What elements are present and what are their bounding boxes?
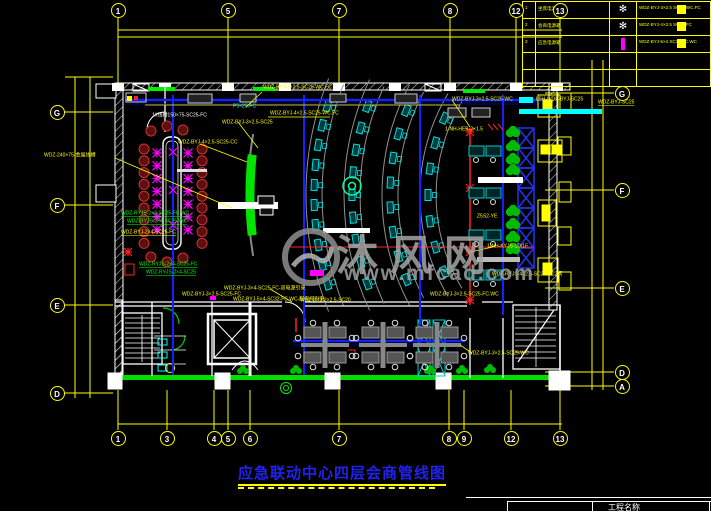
grid-bubble-right-A: A xyxy=(615,379,630,394)
desk xyxy=(311,199,317,210)
workstation-cluster xyxy=(295,320,355,370)
cable-label-6: WDZ-240×75-金属线槽 xyxy=(44,153,96,158)
legend-row-5 xyxy=(523,70,711,87)
plant xyxy=(459,365,465,371)
chair xyxy=(410,110,416,116)
legend-cell: 2 xyxy=(523,19,536,35)
desk xyxy=(441,352,458,363)
desk xyxy=(318,119,326,131)
legend-table: 1坐席电源箱✻WDZ-BYJ-3×2.5 SC25-WC.FC2会商电源箱✻WD… xyxy=(522,1,711,88)
cable-label-13: WDZ-RYJS-2×4-SC25 xyxy=(146,270,196,276)
chair xyxy=(402,133,407,139)
grid-bubble-left-F: F xyxy=(50,198,65,213)
cable-label-12: WDZ-RYJS-2×4-SC25-FC xyxy=(139,262,197,268)
legend-text: 3 xyxy=(525,39,528,44)
plant xyxy=(509,218,517,226)
desk xyxy=(329,352,346,363)
op-chair xyxy=(474,158,479,163)
chair xyxy=(407,353,413,359)
seat xyxy=(197,144,207,154)
footer-table-v3 xyxy=(709,501,710,511)
office-workstation-clusters xyxy=(295,320,467,370)
legend-cell: 会商电源箱 xyxy=(536,19,610,35)
plant xyxy=(509,164,517,172)
seat xyxy=(139,144,149,154)
flower-symbol-icon: ✻ xyxy=(619,5,627,15)
chair xyxy=(364,127,369,133)
seat xyxy=(139,238,149,248)
seat xyxy=(178,125,188,135)
plant xyxy=(509,231,517,239)
legend-cell xyxy=(637,70,711,86)
seat xyxy=(197,227,207,237)
grid-bubble-top-8: 8 xyxy=(443,3,458,18)
legend-cell: ✻ xyxy=(610,2,637,18)
chair xyxy=(334,320,340,326)
grid-bubble-top-12: 12 xyxy=(509,3,524,18)
desk xyxy=(362,352,379,363)
grid-bubble-bottom-13: 13 xyxy=(553,431,568,446)
plant xyxy=(293,365,299,371)
legend-cell xyxy=(610,53,637,69)
op-chair xyxy=(491,200,496,205)
legend-text: WDZ-BYJ-5×4 SC32-FC.WC xyxy=(639,39,697,44)
legend-cell: WDZ-BYJ-5×4 SC32-FC.WC xyxy=(637,36,711,52)
desk xyxy=(416,327,433,338)
desk xyxy=(356,122,365,134)
seat xyxy=(162,121,172,131)
legend-row-2: 2会商电源箱✻WDZ-BYJ-4×2.5 SC25-FC xyxy=(523,19,711,36)
chair xyxy=(439,142,444,148)
legend-yellow-box xyxy=(677,5,686,14)
stairs-left xyxy=(123,313,162,364)
chair xyxy=(322,143,327,149)
chair xyxy=(295,353,301,359)
cable-label-11: WDZ-BYJ-2×4-SC25-FC xyxy=(121,230,176,236)
theater-desk xyxy=(425,190,437,201)
desk xyxy=(314,239,322,251)
desk xyxy=(431,137,440,149)
cable-label-8: WDZ-BYJ-3×2.5-SC25 xyxy=(222,120,273,125)
chair xyxy=(434,167,439,173)
legend-cell: WDZ-BYJ-3×2.5 SC25-WC.FC xyxy=(637,2,711,18)
op-desk xyxy=(469,146,484,156)
cable-label-23: WDZ-BYJ-2×2.5-SC20 xyxy=(300,298,351,303)
grid-bubble-bottom-5: 5 xyxy=(221,431,236,446)
star-mark xyxy=(184,161,193,170)
seat xyxy=(197,156,207,166)
footer-table-v1 xyxy=(507,501,508,511)
star-mark xyxy=(153,149,162,158)
project-name-label: 工程名称 xyxy=(608,502,640,511)
desk xyxy=(387,202,394,213)
seat xyxy=(139,191,149,201)
chair xyxy=(310,364,316,370)
cad-drawing-stage: WDZ-BYJ-3×2.5-SC25-WC.FCWDZ-BYJ-4×2.5-SC… xyxy=(0,0,711,511)
legend-cell: 坐席电源箱 xyxy=(536,2,610,18)
footer-table-v2 xyxy=(592,501,593,511)
workstation-cluster xyxy=(407,320,467,370)
chair xyxy=(310,320,316,326)
star-mark xyxy=(184,200,193,209)
cable-label-0: WDZ-BYJ-3×2.5-SC25-WC.FC xyxy=(263,85,332,90)
op-desk xyxy=(469,188,484,198)
desk xyxy=(416,352,433,363)
desk xyxy=(314,139,322,151)
seat xyxy=(146,252,156,262)
chair xyxy=(392,320,398,326)
star-mark xyxy=(153,200,162,209)
watermark-url: www.mfcad.com xyxy=(344,262,535,286)
desk xyxy=(304,352,321,363)
desk xyxy=(387,352,404,363)
seat xyxy=(139,156,149,166)
theater-desk xyxy=(387,177,399,189)
flower-symbol xyxy=(281,383,292,394)
desk xyxy=(304,327,321,338)
star-mark xyxy=(153,174,162,183)
desk xyxy=(387,327,404,338)
cable-label-22: WDZ-BYJ-3×2.5-SC25-WC xyxy=(468,351,529,356)
plant xyxy=(509,205,517,213)
star-mark xyxy=(153,187,162,196)
seat xyxy=(197,238,207,248)
cable-label-7: WDZ-BYJ-4×2.5-SC25-CC xyxy=(178,140,238,145)
grid-bubble-bottom-6: 6 xyxy=(243,431,258,446)
chair xyxy=(353,353,359,359)
legend-cyan-underline xyxy=(519,109,602,114)
magenta-bar-icon xyxy=(621,38,625,50)
cable-label-3: P5×25-FC xyxy=(233,104,256,109)
seat xyxy=(146,126,156,136)
grid-bubble-top-5: 5 xyxy=(221,3,236,18)
legend-cell: WDZ-BYJ-4×2.5 SC25-FC xyxy=(637,19,711,35)
grid-bubble-bottom-1: 1 xyxy=(111,431,126,446)
legend-text: 会商电源箱 xyxy=(538,22,561,29)
flower-symbol-icon: ✻ xyxy=(619,22,627,32)
footer-divider-line xyxy=(466,497,711,498)
star-mark xyxy=(184,225,193,234)
chair xyxy=(368,364,374,370)
cable-label-9: WDZ-RYJS-2×4-SC25-FC.WC xyxy=(121,211,189,217)
screen-arc xyxy=(248,134,253,256)
legend-row-3: 3应急电源箱WDZ-BYJ-5×4 SC32-FC.WC xyxy=(523,36,711,53)
theater-desk xyxy=(311,179,323,190)
grid-bubble-top-13: 13 xyxy=(553,3,568,18)
grid-bubble-bottom-4: 4 xyxy=(207,431,222,446)
chair xyxy=(368,320,374,326)
grid-bubble-top-7: 7 xyxy=(332,3,347,18)
chair xyxy=(360,148,365,154)
seat xyxy=(197,215,207,225)
grid-bubble-right-E: E xyxy=(615,281,630,296)
theater-desk xyxy=(311,199,323,210)
cable-label-4: WDZ-BYJ-3×2.5-SC25-WC xyxy=(452,97,513,102)
legend-cell xyxy=(536,53,610,69)
legend-cyan-tag xyxy=(519,97,533,103)
plant xyxy=(509,153,517,161)
desk xyxy=(425,190,431,201)
drawing-title: 应急联动中心四层会商管线图 xyxy=(238,462,446,486)
star-mark xyxy=(124,248,132,256)
grid-bubble-top-1: 1 xyxy=(111,3,126,18)
star-mark xyxy=(466,296,474,304)
desk xyxy=(312,159,319,171)
cable-label-18: WDZ-BYJ-3×2.5-SC25-FC.WC xyxy=(430,292,499,297)
desk xyxy=(441,327,458,338)
desk xyxy=(311,179,317,190)
chair xyxy=(446,320,452,326)
stairs-right xyxy=(513,305,560,369)
cable-label-14: WDZ-BYJ-3×4-SC25-FC-双电源引来 xyxy=(224,286,306,291)
grid-bubble-bottom-8: 8 xyxy=(442,431,457,446)
seat xyxy=(139,179,149,189)
legend-text: WDZ-BYJ-3×2.5 SC25-WC.FC xyxy=(639,5,701,10)
chair xyxy=(397,156,402,162)
cable-label-21: 1-NH-HEB-2×1.5 xyxy=(445,127,483,132)
grid-bubble-right-D: D xyxy=(615,365,630,380)
legend-text: 2 xyxy=(525,22,528,27)
screen-green-arc xyxy=(250,155,252,236)
seat xyxy=(197,203,207,213)
bottom-columns xyxy=(108,371,570,390)
workstation-cluster xyxy=(353,320,413,370)
cable-label-10: WDZ-RYJS-2×4-SC25-WC xyxy=(127,219,187,225)
cable-label-24: WDZ-BYJ-SC25 xyxy=(598,100,634,106)
chair xyxy=(422,320,428,326)
grid-bubble-left-E: E xyxy=(50,298,65,313)
star-mark xyxy=(184,149,193,158)
desk xyxy=(387,177,394,188)
star-mark xyxy=(153,161,162,170)
desk xyxy=(394,128,403,140)
star-mark xyxy=(184,174,193,183)
legend-cell: 1 xyxy=(523,2,536,18)
legend-cell xyxy=(523,70,536,86)
plant xyxy=(487,364,493,370)
desk xyxy=(329,327,346,338)
legend-yellow-box xyxy=(677,39,686,48)
chair xyxy=(334,364,340,370)
op-desk xyxy=(486,146,501,156)
legend-cell xyxy=(637,53,711,69)
cable-label-5: L5H-WDZ-BYJ-SC25 xyxy=(536,97,583,102)
chair xyxy=(322,241,327,247)
desk xyxy=(389,152,397,164)
title-dashed-underline xyxy=(238,487,435,489)
partition-v xyxy=(381,322,386,368)
chair xyxy=(446,364,452,370)
chair xyxy=(392,364,398,370)
drawing-title-link[interactable]: 应急联动中心四层会商管线图 xyxy=(238,462,446,486)
cable-label-20: Z5S2-YE xyxy=(477,214,497,219)
cable-label-16: WDZ-BYJ-3×2.5-SC25-FC xyxy=(182,292,241,297)
grid-bubble-bottom-9: 9 xyxy=(457,431,472,446)
partition-v xyxy=(435,322,440,368)
legend-row-4 xyxy=(523,53,711,70)
desk xyxy=(362,327,379,338)
op-desk xyxy=(486,188,501,198)
grid-bubble-right-G: G xyxy=(615,86,630,101)
plant xyxy=(240,365,246,371)
grid-bubble-left-G: G xyxy=(50,105,65,120)
chair xyxy=(326,124,331,130)
grid-bubble-bottom-3: 3 xyxy=(160,431,175,446)
desk xyxy=(352,144,360,156)
legend-row-1: 1坐席电源箱✻WDZ-BYJ-3×2.5 SC25-WC.FC xyxy=(523,2,711,19)
theater-desk xyxy=(387,201,399,213)
plant xyxy=(509,126,517,134)
legend-text: 1 xyxy=(525,5,528,10)
grid-bubble-bottom-7: 7 xyxy=(332,431,347,446)
chair xyxy=(461,353,467,359)
seat xyxy=(197,191,207,201)
cable-label-2: 1#线槽150×75-SC25-FC xyxy=(152,113,207,118)
theater-desk xyxy=(356,122,370,136)
legend-cell: 3 xyxy=(523,36,536,52)
legend-cell xyxy=(610,70,637,86)
op-chair xyxy=(491,158,496,163)
chair xyxy=(447,118,453,124)
grid-bubble-left-D: D xyxy=(50,386,65,401)
partition-v xyxy=(323,322,328,368)
legend-cell xyxy=(523,53,536,69)
legend-yellow-box xyxy=(677,22,686,31)
cable-label-1: WDZ-BYJ-4×2.5-SC25-WC.FC xyxy=(270,111,339,116)
op-chair xyxy=(474,200,479,205)
desk xyxy=(363,100,372,112)
plant xyxy=(509,140,517,148)
desk xyxy=(426,163,433,175)
legend-cell xyxy=(610,36,637,52)
legend-text: 应急电源箱 xyxy=(538,39,561,46)
grid-bubble-bottom-12: 12 xyxy=(504,431,519,446)
grid-bubble-right-F: F xyxy=(615,183,630,198)
legend-cell: ✻ xyxy=(610,19,637,35)
seat xyxy=(197,179,207,189)
legend-cell xyxy=(536,70,610,86)
legend-cell: 应急电源箱 xyxy=(536,36,610,52)
chair xyxy=(371,105,376,111)
